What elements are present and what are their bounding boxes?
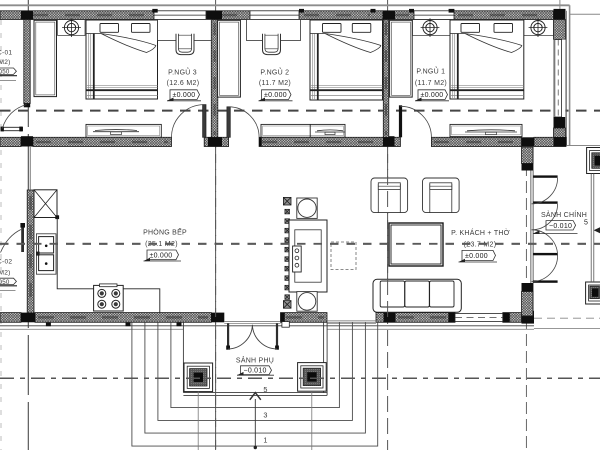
svg-text:050: 050: [0, 69, 10, 76]
svg-text:1: 1: [263, 435, 267, 444]
svg-text:±0.000: ±0.000: [421, 92, 444, 99]
svg-text:±0.000: ±0.000: [173, 92, 196, 99]
svg-text:(11.7 M2): (11.7 M2): [259, 80, 291, 87]
svg-text:3: 3: [263, 410, 267, 419]
svg-text:(M2): (M2): [0, 59, 11, 66]
svg-text:SẢNH CHÍNH: SẢNH CHÍNH: [541, 210, 587, 219]
svg-text:(11.7 M2): (11.7 M2): [415, 80, 447, 87]
svg-text:5: 5: [584, 220, 588, 227]
svg-text:C-01: C-01: [0, 49, 12, 56]
svg-text:050: 050: [0, 279, 10, 286]
svg-text:P.NGỦ 1: P.NGỦ 1: [416, 67, 445, 76]
svg-text:−0.010: −0.010: [549, 223, 572, 230]
svg-text:(12.6 M2): (12.6 M2): [167, 80, 200, 87]
svg-text:±0.000: ±0.000: [150, 252, 173, 259]
svg-text:(M2): (M2): [0, 269, 11, 276]
svg-text:C-02: C-02: [0, 259, 12, 266]
svg-text:(23.7 M2): (23.7 M2): [464, 242, 497, 249]
svg-text:P.NGỦ 2: P.NGỦ 2: [260, 68, 289, 77]
svg-text:P. KHÁCH + THỜ: P. KHÁCH + THỜ: [451, 228, 510, 237]
svg-text:SẢNH PHỤ: SẢNH PHỤ: [236, 356, 274, 365]
svg-text:5: 5: [263, 385, 267, 394]
svg-text:±0.000: ±0.000: [465, 253, 488, 260]
svg-text:±0.000: ±0.000: [264, 92, 287, 99]
svg-text:P.NGỦ 3: P.NGỦ 3: [168, 68, 197, 77]
svg-text:−0.010: −0.010: [244, 368, 267, 375]
